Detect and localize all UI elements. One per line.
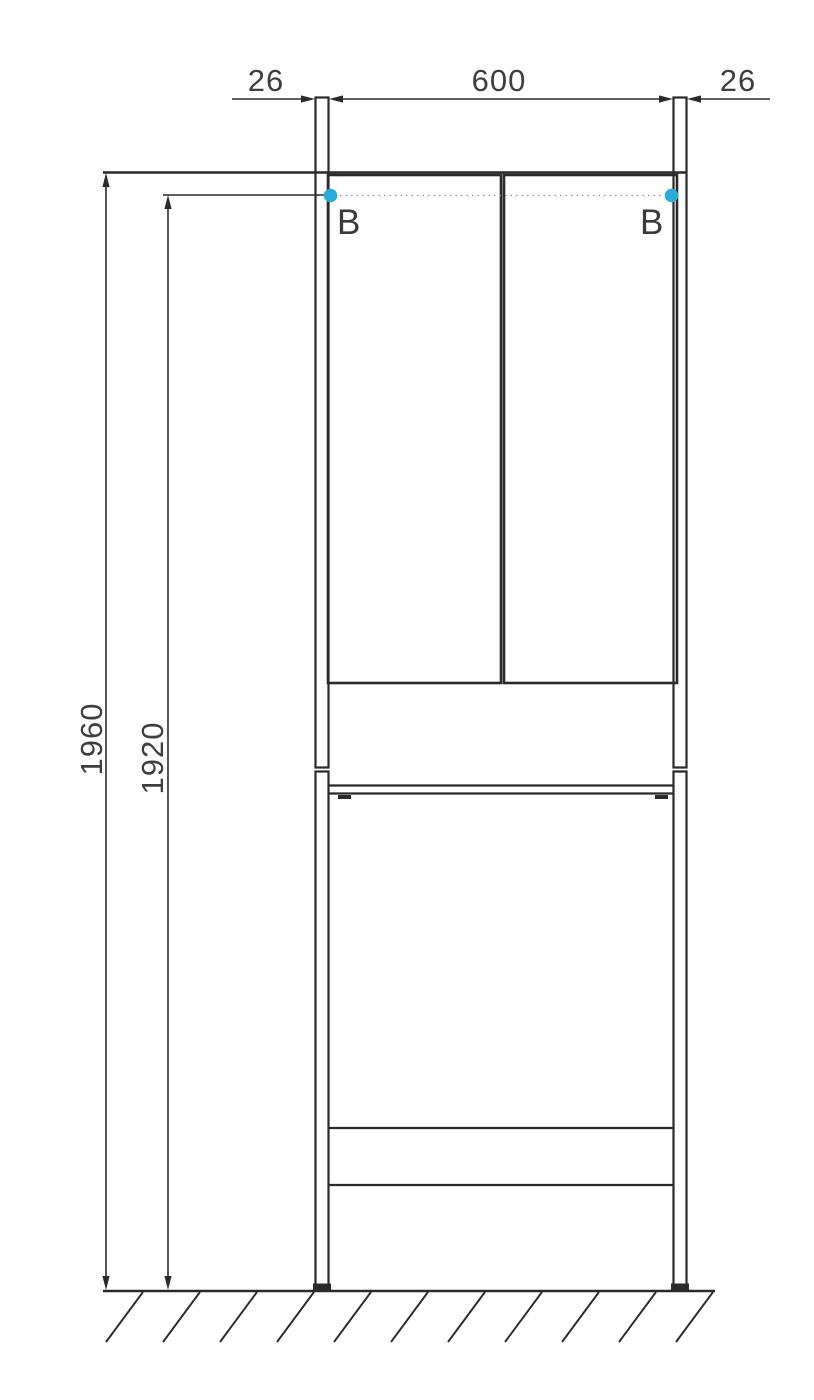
mounting-point-right-dot (665, 189, 679, 203)
mounting-point-right-label: B (640, 203, 663, 242)
dim-600-label: 600 (472, 63, 527, 98)
door-right (504, 175, 677, 683)
dim-26-left-label: 26 (248, 63, 284, 98)
floor-group (103, 1291, 715, 1342)
mounting-point-left-label: B (337, 203, 360, 242)
foot-left (313, 1284, 331, 1291)
dim-26-right-label: 26 (720, 63, 756, 98)
dim-1960-label: 1960 (74, 703, 109, 776)
side-panel-right-lower (674, 772, 687, 1288)
dim-arrow-right-icon (659, 95, 673, 102)
top-dimension-group: 26 600 26 (232, 63, 770, 103)
mounting-point-left-dot (324, 189, 338, 203)
fitting-mark-right (655, 795, 668, 799)
door-left (328, 175, 501, 683)
side-panel-left-lower (316, 772, 329, 1288)
foot-right (671, 1284, 689, 1291)
fitting-mark-left (338, 795, 351, 799)
dim-1920-label: 1920 (135, 722, 170, 795)
dim-arrow-right-icon (301, 95, 315, 102)
dim-arrow-left-icon (687, 95, 701, 102)
dim-arrow-left-icon (329, 95, 343, 102)
drawing-canvas: 26 600 26 1960 1920 (0, 0, 814, 1400)
height-dimension-1960-group: 1960 (74, 173, 110, 1290)
height-dimension-1920-group: 1920 (135, 195, 324, 1290)
dim-arrow-up-icon (102, 173, 109, 187)
cabinet-drawing: 26 600 26 1960 1920 (0, 0, 814, 1400)
dim-arrow-up-icon (164, 195, 171, 209)
floor-hatching (106, 1292, 713, 1342)
dim-arrow-down-icon (164, 1276, 171, 1290)
cabinet-structure-group (103, 98, 689, 1291)
dim-arrow-down-icon (102, 1276, 109, 1290)
